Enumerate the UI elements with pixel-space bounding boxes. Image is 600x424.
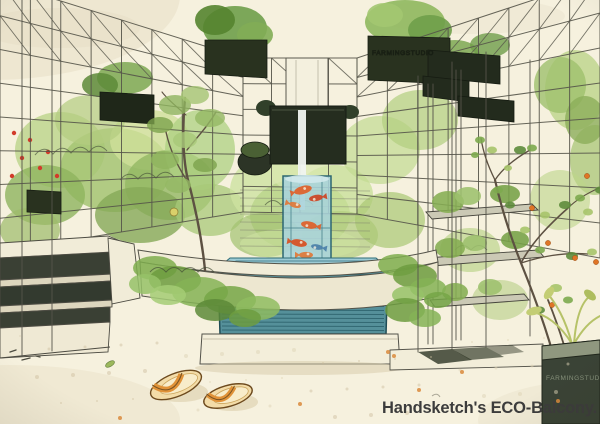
- plinth-base: [200, 334, 400, 364]
- watermark-text: FARMINGSTUDIO: [546, 375, 600, 382]
- hanging-fruit: [170, 208, 178, 216]
- eco-balcony-sketch: FARMINGSTUDIO: [0, 0, 600, 424]
- caption: Handsketch's ECO-Balcony.: [382, 399, 597, 417]
- waterfall-stream: [298, 110, 306, 184]
- watermark-text: FARMINGSTUDIO: [372, 50, 434, 57]
- water-chute: [286, 58, 328, 108]
- feed-box: [270, 106, 346, 164]
